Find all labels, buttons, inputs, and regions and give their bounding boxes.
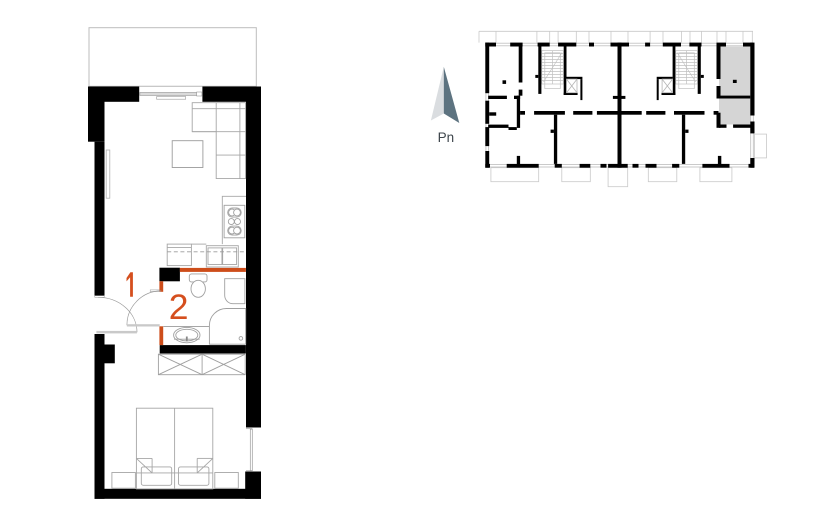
svg-text:2: 2: [169, 287, 189, 327]
svg-text:Pn: Pn: [438, 130, 455, 145]
